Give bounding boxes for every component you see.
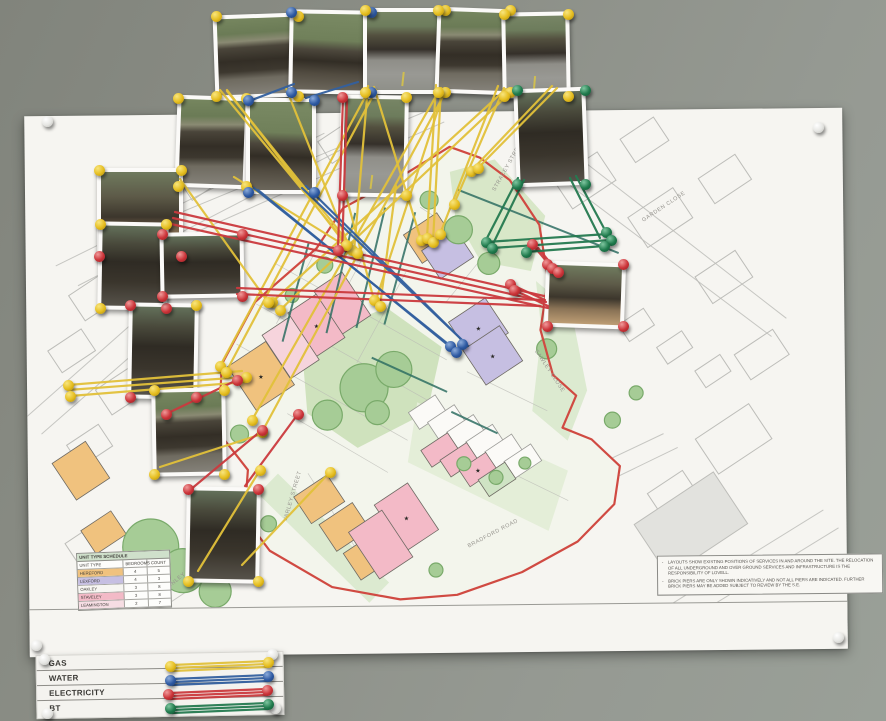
push-pin (176, 165, 187, 176)
push-pin (337, 190, 348, 201)
push-pin (433, 5, 444, 16)
push-pin (95, 303, 106, 314)
site-photo (174, 95, 249, 189)
push-pin (125, 300, 136, 311)
legend-row-bt: BT (37, 697, 283, 715)
push-pin (176, 251, 187, 262)
push-pin (211, 11, 222, 22)
svg-text:★: ★ (314, 323, 319, 330)
push-pin (275, 305, 286, 316)
push-pin (401, 190, 412, 201)
push-pin (125, 392, 136, 403)
trench-photo-image (217, 17, 298, 96)
trench-photo-image (343, 98, 405, 193)
push-pin (499, 91, 510, 102)
push-pin (161, 409, 172, 420)
push-pin (63, 380, 74, 391)
push-pin (563, 9, 574, 20)
push-pin (95, 219, 106, 230)
push-pin (65, 391, 76, 402)
push-pin (243, 95, 254, 106)
push-pin (563, 91, 574, 102)
push-pin (173, 93, 184, 104)
push-pin (433, 87, 444, 98)
push-pin (833, 632, 844, 643)
street-label: GARDEN CLOSE (641, 190, 687, 223)
push-pin (309, 187, 320, 198)
push-pin (618, 321, 629, 332)
push-pin (94, 251, 105, 262)
trench-photo-image (179, 99, 246, 185)
push-pin (149, 469, 160, 480)
title-strip (29, 601, 847, 658)
site-photo (185, 486, 261, 583)
site-photo (159, 231, 244, 298)
trench-photo-image (131, 306, 195, 395)
push-pin (211, 91, 222, 102)
push-pin (325, 467, 336, 478)
site-photo (513, 87, 588, 187)
push-pin (191, 300, 202, 311)
push-pin (580, 179, 591, 190)
push-pin (360, 5, 371, 16)
push-pin (618, 259, 629, 270)
push-pin (31, 640, 42, 651)
site-photo (288, 9, 373, 94)
push-pin (183, 576, 194, 587)
push-pin (39, 654, 50, 665)
push-pin (449, 199, 460, 210)
push-pin (157, 291, 168, 302)
push-pin (487, 243, 498, 254)
push-pin (375, 301, 386, 312)
push-pin (352, 248, 363, 259)
push-pin (435, 229, 446, 240)
push-pin (165, 675, 176, 686)
pinboard-wall: ★★★ ★★★★ STRACEY STREET GA (0, 0, 886, 721)
note-text: BRICK PIERS ARE ONLY SHOWN INDICATIVELY … (668, 576, 878, 589)
trench-photo-image (292, 13, 369, 90)
push-pin (262, 685, 273, 696)
push-pin (183, 484, 194, 495)
push-pin (253, 484, 264, 495)
push-pin (263, 671, 274, 682)
svg-text:★: ★ (475, 468, 480, 475)
site-photo (246, 98, 316, 194)
svg-text:★: ★ (404, 515, 409, 522)
push-pin (247, 415, 258, 426)
push-pin (263, 657, 274, 668)
push-pin (263, 699, 274, 710)
svg-text:★: ★ (490, 353, 495, 360)
services-legend-board: GAS WATER ELECTRICITY BT (35, 651, 284, 719)
push-pin (157, 229, 168, 240)
push-pin (237, 291, 248, 302)
trench-photo-image (250, 102, 312, 190)
push-pin (221, 367, 232, 378)
push-pin (553, 267, 564, 278)
push-pin (94, 165, 105, 176)
trench-photo-image (163, 235, 240, 294)
push-pin (599, 241, 610, 252)
trench-photo-image (517, 91, 584, 183)
push-pin (509, 285, 520, 296)
push-pin (161, 303, 172, 314)
push-pin (542, 321, 553, 332)
site-photo (501, 11, 570, 98)
push-pin (401, 92, 412, 103)
push-pin (512, 85, 523, 96)
push-pin (309, 95, 320, 106)
push-pin (286, 7, 297, 18)
trench-photo-image (155, 391, 222, 472)
push-pin (499, 9, 510, 20)
trench-photo-image (101, 225, 164, 306)
push-pin (286, 87, 297, 98)
push-pin (173, 181, 184, 192)
push-pin (232, 375, 243, 386)
push-pin (165, 703, 176, 714)
trench-photo-image (439, 11, 510, 91)
push-pin (813, 122, 824, 133)
push-pin (219, 385, 230, 396)
push-pin (521, 247, 532, 258)
trench-photo-image (505, 15, 566, 94)
push-pin (337, 92, 348, 103)
unit-type-schedule-table: UNIT TYPE SCHEDULE UNIT TYPE BEDROOMS CO… (76, 550, 172, 611)
push-pin (293, 409, 304, 420)
push-pin (42, 116, 53, 127)
site-photo (127, 302, 199, 399)
trench-photo-image (189, 490, 257, 579)
push-pin (257, 425, 268, 436)
push-pin (237, 229, 248, 240)
note-text: LAYOUTS SHOW EXISTING POSITIONS OF SERVI… (668, 557, 878, 576)
push-pin (219, 469, 230, 480)
trench-photo-image (367, 12, 443, 90)
push-pin (451, 347, 462, 358)
push-pin (253, 576, 264, 587)
push-pin (360, 87, 371, 98)
push-pin (512, 179, 523, 190)
push-pin (255, 465, 266, 476)
svg-text:★: ★ (476, 326, 481, 333)
push-pin (263, 297, 274, 308)
push-pin (580, 85, 591, 96)
push-pin (165, 661, 176, 672)
push-pin (149, 385, 160, 396)
svg-text:★: ★ (258, 374, 263, 381)
push-pin (473, 163, 484, 174)
site-photo (151, 387, 227, 476)
site-photo (339, 94, 409, 197)
push-pin (42, 708, 53, 719)
push-pin (333, 245, 344, 256)
push-pin (191, 392, 202, 403)
notes-box: LAYOUTS SHOW EXISTING POSITIONS OF SERVI… (657, 553, 883, 595)
push-pin (163, 689, 174, 700)
push-pin (243, 187, 254, 198)
